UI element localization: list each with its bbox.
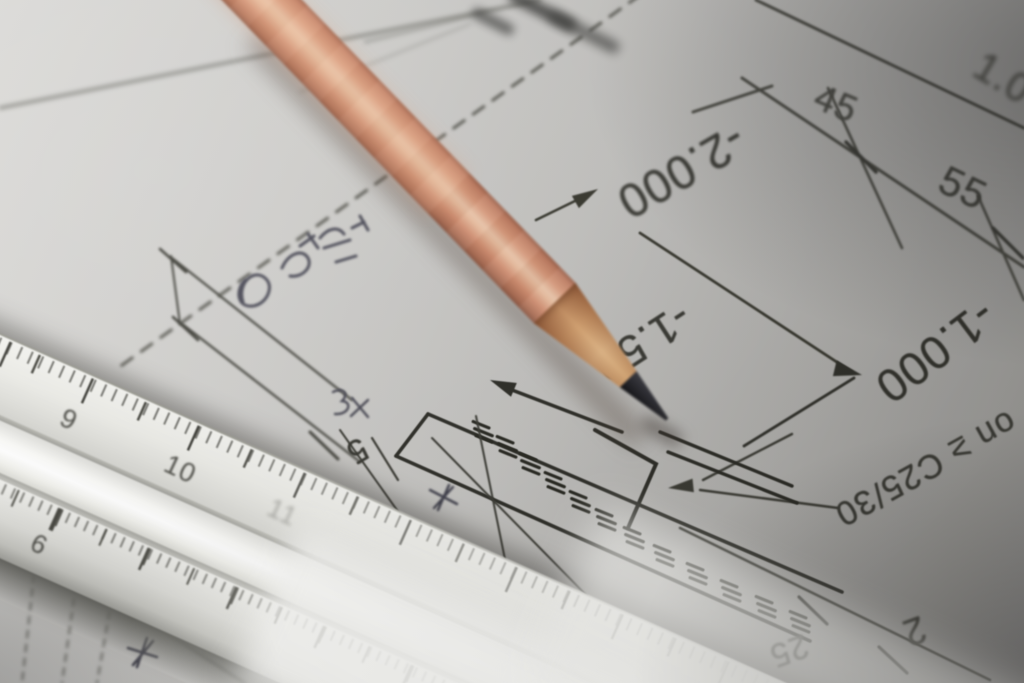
level-marker-lower bbox=[744, 361, 862, 447]
handwritten-3x bbox=[333, 390, 368, 417]
handwritten-scribble bbox=[239, 216, 368, 306]
photo-scene: -2.000 45 55 1.0 -1.50 -1.000 on ≥ C25/3… bbox=[0, 0, 1024, 683]
